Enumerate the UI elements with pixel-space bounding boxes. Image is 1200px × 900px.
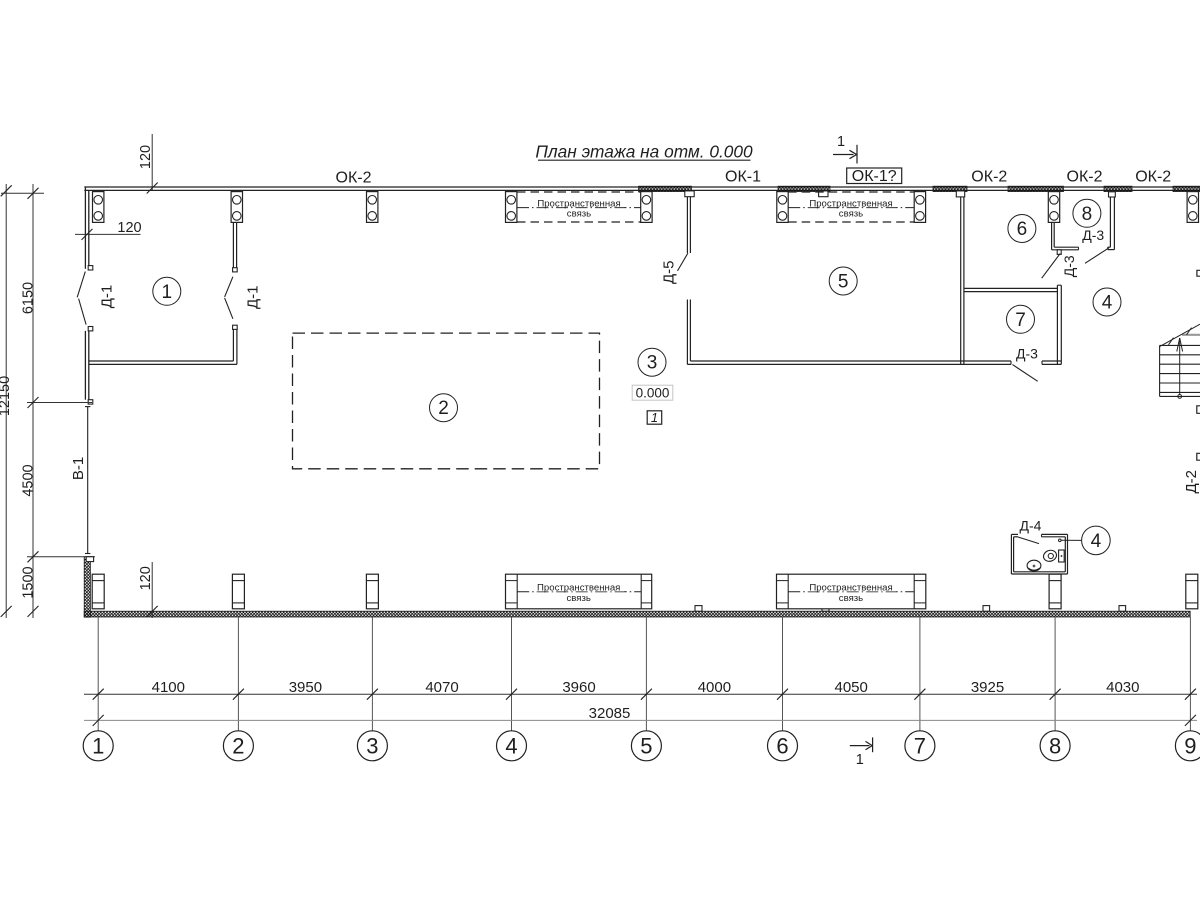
svg-text:ОК-2: ОК-2 [971,169,1007,186]
svg-text:6150: 6150 [21,282,37,314]
svg-text:1500: 1500 [21,566,37,598]
svg-text:Д-5: Д-5 [661,261,678,285]
svg-text:Д-1: Д-1 [245,286,262,310]
svg-text:2: 2 [438,398,449,419]
svg-text:4500: 4500 [21,464,37,496]
svg-text:6: 6 [776,734,788,759]
svg-text:Д-4: Д-4 [1020,518,1042,534]
svg-text:1: 1 [651,410,658,425]
svg-text:3925: 3925 [971,679,1004,696]
svg-text:связь: связь [839,593,863,604]
svg-text:6: 6 [1017,219,1028,240]
svg-text:1: 1 [837,134,845,150]
svg-text:8: 8 [1049,734,1061,759]
svg-text:4100: 4100 [152,679,185,696]
svg-text:7: 7 [914,734,926,759]
svg-text:4070: 4070 [425,679,458,696]
svg-text:Д-2: Д-2 [1183,470,1200,494]
svg-text:4: 4 [1102,293,1113,314]
svg-text:4030: 4030 [1106,679,1139,696]
svg-text:1: 1 [162,282,173,303]
svg-text:32085: 32085 [589,705,631,722]
svg-text:ОК-2: ОК-2 [1067,169,1103,186]
svg-text:4: 4 [505,734,517,759]
svg-text:связь: связь [839,209,863,220]
svg-text:3960: 3960 [562,679,595,696]
svg-text:ОК-2: ОК-2 [1135,169,1171,186]
svg-text:2: 2 [232,734,244,759]
svg-text:ОК-1?: ОК-1? [852,168,897,185]
svg-text:Д-3: Д-3 [1082,227,1104,243]
svg-text:3950: 3950 [289,679,322,696]
svg-text:5: 5 [838,272,849,293]
svg-text:План этажа на отм. 0.000: План этажа на отм. 0.000 [535,142,753,162]
svg-text:120: 120 [138,566,154,590]
svg-text:связь: связь [567,209,591,220]
svg-text:7: 7 [1015,310,1026,331]
svg-text:1: 1 [92,734,104,759]
svg-text:4000: 4000 [698,679,731,696]
svg-text:Д-3: Д-3 [1016,345,1038,361]
svg-text:5: 5 [640,734,652,759]
svg-text:ОК-1: ОК-1 [725,169,761,186]
svg-text:9: 9 [1184,734,1196,759]
svg-text:4050: 4050 [835,679,868,696]
svg-text:120: 120 [138,145,154,169]
svg-text:связь: связь [567,593,591,604]
svg-text:В-1: В-1 [70,457,87,480]
svg-text:3: 3 [647,353,658,374]
svg-text:1: 1 [856,752,864,768]
svg-text:ОК-2: ОК-2 [336,170,372,187]
svg-text:Д-1: Д-1 [99,285,116,309]
svg-text:Д-3: Д-3 [1061,255,1077,277]
svg-text:3: 3 [366,734,378,759]
svg-text:12150: 12150 [0,376,13,416]
svg-text:8: 8 [1082,204,1093,225]
svg-text:120: 120 [117,220,141,236]
svg-text:4: 4 [1091,531,1102,552]
svg-text:0.000: 0.000 [636,386,670,401]
